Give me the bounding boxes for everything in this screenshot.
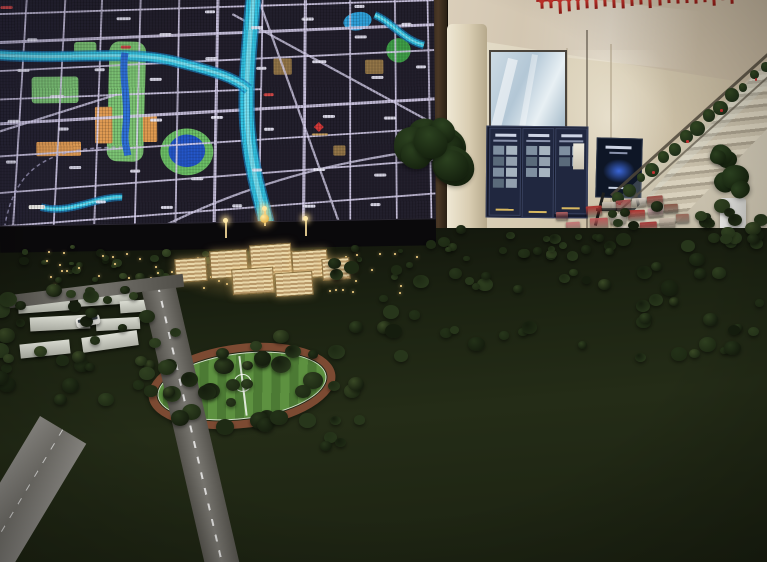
tree (379, 295, 387, 302)
tree (181, 372, 198, 387)
tree (92, 277, 98, 282)
tree (163, 387, 174, 397)
tree (328, 381, 340, 391)
tree (468, 337, 485, 351)
tree (118, 324, 127, 332)
tree (438, 237, 450, 247)
distant-light (46, 260, 48, 262)
distant-light (356, 254, 358, 256)
tree (522, 321, 537, 334)
distant-light (342, 289, 344, 291)
tree (543, 236, 550, 242)
tree (661, 280, 679, 295)
tree (46, 284, 62, 297)
distant-light (59, 264, 61, 266)
tree (250, 341, 262, 351)
tree (270, 410, 287, 425)
tree (68, 301, 81, 312)
tree (354, 415, 365, 424)
tree (171, 410, 189, 425)
tree (582, 276, 591, 283)
tree (299, 413, 316, 427)
spire-pole (305, 220, 307, 236)
tree (595, 234, 604, 242)
tree (22, 249, 28, 254)
tree (133, 380, 144, 389)
tree (413, 275, 429, 288)
distant-light (61, 270, 63, 272)
photo-root (0, 0, 767, 562)
distant-light (399, 292, 401, 294)
tree (499, 331, 509, 340)
tree (0, 328, 15, 343)
distant-light (98, 275, 100, 277)
tree (426, 240, 436, 248)
tree (755, 299, 764, 307)
tree (712, 267, 726, 279)
tree (720, 234, 732, 244)
tree (406, 262, 413, 268)
tree (103, 296, 112, 304)
tree (635, 353, 646, 362)
scale-model (0, 0, 767, 562)
tree (15, 301, 25, 310)
tree (671, 347, 687, 361)
distant-light (128, 277, 130, 279)
distant-light (139, 258, 141, 260)
tree (651, 262, 662, 271)
tree (694, 268, 706, 278)
spire-light (262, 206, 267, 211)
distant-light (416, 256, 418, 258)
tree (598, 279, 611, 290)
distant-light (48, 251, 50, 253)
distant-light (112, 256, 114, 258)
tree (472, 283, 480, 290)
distant-light (400, 285, 402, 287)
tree (383, 305, 399, 319)
tree (385, 324, 401, 338)
tree (241, 379, 253, 389)
distant-light (379, 253, 381, 255)
tree (55, 277, 62, 283)
ornate-building (231, 267, 275, 296)
distant-light (157, 272, 159, 274)
tree (567, 251, 578, 261)
tree (198, 385, 215, 400)
distant-light (371, 269, 373, 271)
tree (150, 255, 159, 262)
tree (139, 367, 154, 380)
tree (605, 248, 614, 256)
tree (226, 398, 236, 407)
tree (139, 310, 155, 323)
distant-light (355, 280, 357, 282)
tree (119, 273, 126, 279)
tree (669, 297, 679, 306)
tree (620, 208, 630, 217)
tree (54, 394, 67, 405)
tree (649, 294, 663, 306)
tree (559, 274, 570, 283)
distant-light (394, 253, 396, 255)
tree (748, 327, 759, 336)
ornate-building (274, 271, 314, 298)
tree (349, 321, 363, 333)
tree (651, 201, 664, 212)
distant-light (352, 291, 354, 293)
tree (158, 360, 175, 374)
tree (637, 266, 652, 278)
distant-light (50, 276, 52, 278)
tree (330, 269, 343, 280)
distant-light (102, 255, 104, 257)
tree (216, 348, 229, 359)
tree (120, 286, 130, 295)
distant-light (63, 252, 65, 254)
tree (285, 345, 301, 359)
tree (66, 290, 76, 298)
spire-light (303, 216, 308, 221)
distant-light (126, 253, 128, 255)
tree (695, 211, 707, 221)
tree (56, 355, 68, 366)
tree (578, 341, 587, 349)
tree (689, 349, 700, 358)
tree (295, 385, 311, 398)
tree (549, 234, 561, 244)
tree (745, 222, 761, 235)
tree (728, 214, 742, 226)
tree (16, 319, 25, 327)
tree (98, 393, 114, 407)
tree (608, 210, 618, 218)
tree (271, 356, 291, 373)
tree (90, 336, 101, 345)
tree (72, 351, 85, 362)
tree (3, 354, 14, 363)
golden-balloon (260, 214, 269, 223)
tree (330, 416, 341, 425)
tree (616, 233, 631, 246)
tree (581, 245, 591, 254)
tree (704, 219, 714, 228)
tree (499, 247, 507, 254)
tree (613, 219, 622, 227)
tree (70, 245, 75, 249)
spire-light (223, 218, 228, 223)
tree (348, 377, 365, 391)
tree (83, 290, 99, 303)
tree (351, 245, 358, 251)
tree (226, 379, 240, 391)
tree (34, 346, 47, 357)
distant-light (78, 267, 80, 269)
spire-pole (225, 222, 227, 238)
tree (357, 257, 363, 262)
tree (85, 363, 95, 371)
distant-light (114, 263, 116, 265)
tree (144, 385, 157, 396)
model-base (0, 228, 767, 562)
distant-light (66, 270, 68, 272)
tree (533, 247, 542, 254)
tree (681, 240, 695, 252)
tree (398, 249, 403, 253)
distant-light (155, 266, 157, 268)
